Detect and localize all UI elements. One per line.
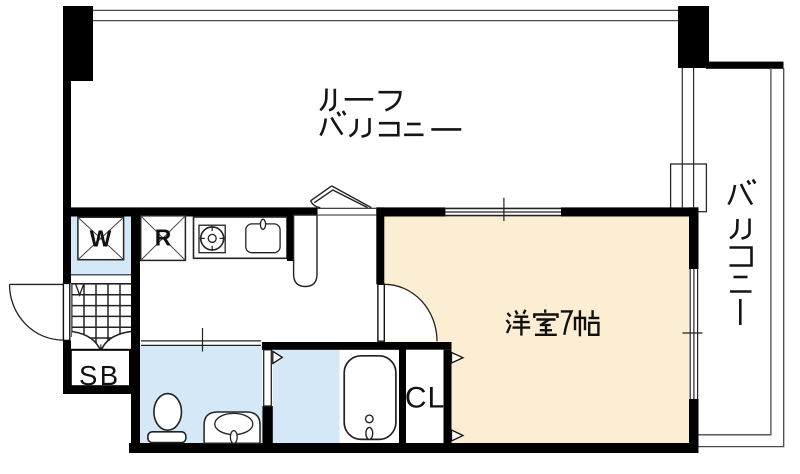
svg-text:SB: SB [79,360,121,391]
svg-text:W: W [90,226,112,252]
svg-text:R: R [155,225,172,251]
svg-text:CL: CL [405,382,445,415]
